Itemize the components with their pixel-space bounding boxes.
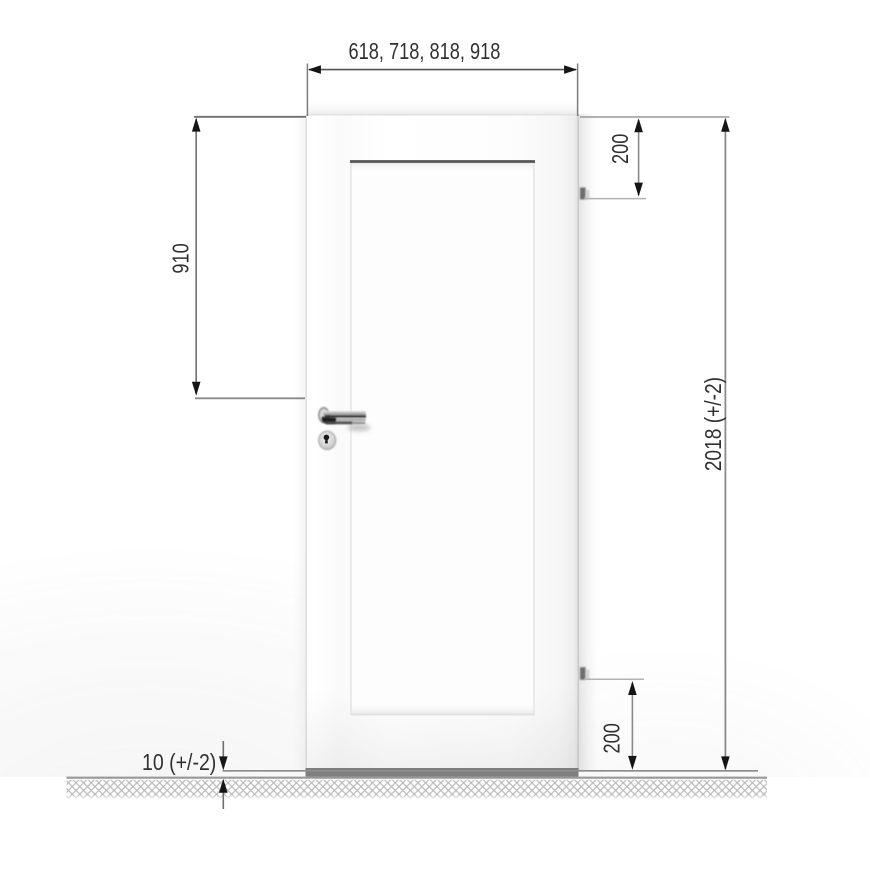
svg-text:2018 (+/-2): 2018 (+/-2) xyxy=(700,377,726,471)
svg-text:10 (+/-2): 10 (+/-2) xyxy=(142,749,216,775)
svg-text:200: 200 xyxy=(600,723,626,753)
svg-text:618, 718, 818, 918: 618, 718, 818, 918 xyxy=(348,39,500,65)
svg-text:910: 910 xyxy=(168,243,194,273)
svg-text:200: 200 xyxy=(608,134,634,164)
